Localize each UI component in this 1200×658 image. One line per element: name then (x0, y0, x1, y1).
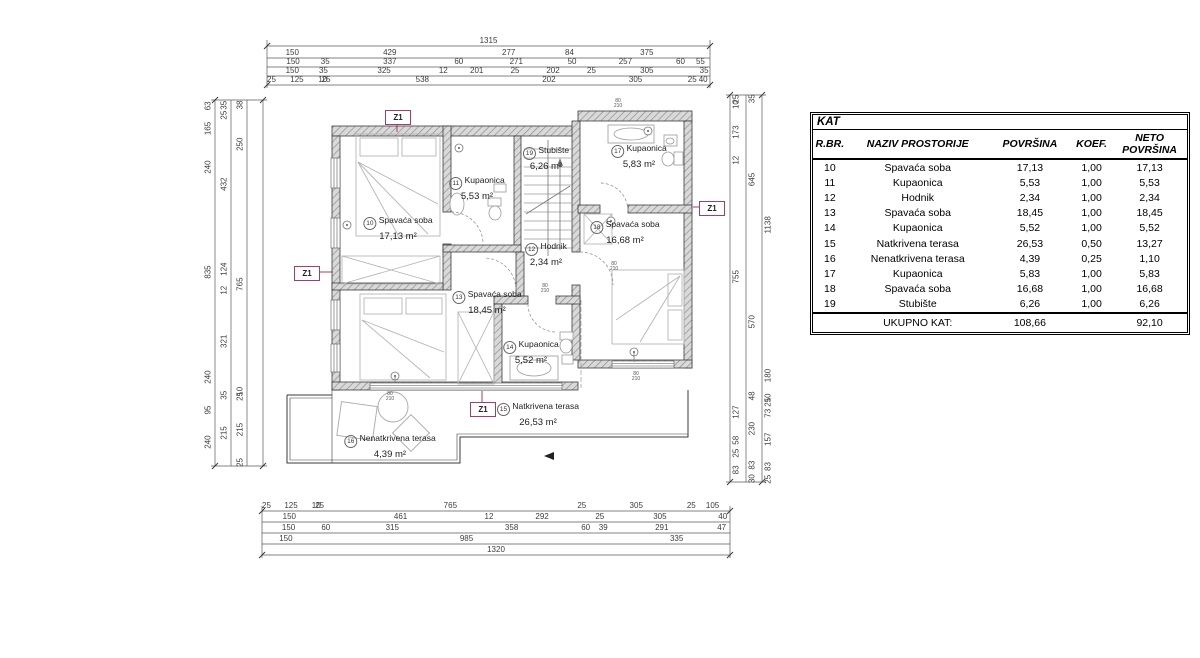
dim-label: 47 (713, 523, 730, 533)
dim-label: 25 (687, 501, 695, 511)
table-cell (813, 313, 847, 332)
table-cell: 2,34 (1112, 190, 1187, 205)
dim-label: 570 (747, 255, 758, 389)
room-number: 12 (525, 243, 538, 256)
room-label-18: 18 Spavaća soba 16,68 m² (590, 219, 659, 246)
dim-chain-bottom-1: 2512510257652530525105 (262, 501, 730, 511)
dim-label: 95 (203, 401, 214, 420)
dim-label: 538 (330, 75, 514, 85)
dim-label: 165 (203, 112, 214, 144)
table-row: 16Nenatkrivena terasa4,390,251,10 (813, 251, 1187, 266)
table-cell: Nenatkrivena terasa (847, 251, 989, 266)
table-cell: 2,34 (989, 190, 1071, 205)
table-cell: 1,00 (1071, 159, 1112, 175)
door-size-tag: 80210 (632, 372, 640, 382)
dim-label: 30 (747, 475, 758, 482)
dim-label: 1138 (763, 95, 774, 355)
table-cell: 0,25 (1071, 251, 1112, 266)
dim-label: 835 (203, 191, 214, 354)
table-cell: Kupaonica (847, 266, 989, 281)
table-cell: Spavaća soba (847, 282, 989, 297)
room-area: 5,52 m² (503, 355, 559, 366)
table-cell: 13 (813, 206, 847, 221)
dim-chain-right-2: 35645570482308330 (747, 95, 758, 482)
dim-label: 432 (219, 118, 230, 250)
room-label-15: 15 Natkrivena terasa 26,53 m² (497, 401, 579, 428)
dim-label: 48 (747, 390, 758, 401)
room-name: Nenatkrivena terasa (360, 433, 436, 443)
table-cell: 1,00 (1071, 190, 1112, 205)
table-cell: 5,83 (1112, 266, 1187, 281)
dim-label: 765 (235, 179, 246, 390)
section-marker-z1-left: Z1 (294, 266, 320, 281)
table-cell: 6,26 (1112, 297, 1187, 313)
table-cell: 1,00 (1071, 282, 1112, 297)
table-total-row: UKUPNO KAT: 108,66 92,10 (813, 313, 1187, 332)
dim-label: 83 (763, 457, 774, 476)
dim-label: 105 (695, 501, 730, 511)
dim-label: 25 (595, 512, 604, 522)
room-area: 26,53 m² (497, 417, 579, 428)
door-size-tag: 80210 (541, 284, 549, 294)
table-cell: 12 (813, 190, 847, 205)
dim-label: 25 (763, 476, 774, 482)
table-total-label: UKUPNO KAT: (847, 313, 989, 332)
table-cell: 18,45 (1112, 206, 1187, 221)
table-cell: Spavaća soba (847, 159, 989, 175)
floor-plan-sheet: 1315 15042927784375 15035337602715025760… (0, 0, 1200, 658)
table-title: KAT (813, 115, 1187, 130)
room-name: Spavaća soba (606, 219, 660, 229)
table-cell: 13,27 (1112, 236, 1187, 251)
table-cell: 14 (813, 221, 847, 236)
table-cell: Stubište (847, 297, 989, 313)
table-cell: 17,13 (989, 159, 1071, 175)
dim-label: 60 (575, 523, 596, 533)
room-name: Stubište (538, 145, 569, 155)
room-area: 4,39 m² (344, 449, 435, 460)
dim-chain-right-1: 251017312755127582583 (731, 95, 742, 482)
room-name: Spavaća soba (468, 289, 522, 299)
dim-label: 240 (203, 144, 214, 191)
dim-label: 240 (203, 419, 214, 466)
dim-label: 292 (489, 512, 595, 522)
room-label-10: 10 Spavaća soba 17,13 m² (363, 215, 432, 242)
dim-label: 321 (219, 292, 230, 390)
table-cell (1071, 313, 1112, 332)
dim-label: 215 (219, 400, 230, 466)
dim-label: 25 (688, 75, 697, 85)
table-row: 13Spavaća soba18,451,0018,45 (813, 206, 1187, 221)
room-name: Kupaonica (627, 143, 667, 153)
dim-chain-left-3: 38250765102521525 (235, 100, 246, 466)
dim-chain-top-1: 1315 (267, 36, 710, 46)
table-cell: 11 (813, 175, 847, 190)
room-number: 11 (449, 177, 462, 190)
table-cell: 16 (813, 251, 847, 266)
dim-label: 315 (336, 523, 448, 533)
dim-label: 83 (731, 457, 742, 482)
table-cell: Kupaonica (847, 175, 989, 190)
table-cell: 15 (813, 236, 847, 251)
dim-label: 150 (262, 523, 315, 533)
table-cell: 5,52 (1112, 221, 1187, 236)
dim-chain-bottom-3: 15060315358603929147 (262, 523, 730, 533)
table-cell: 1,10 (1112, 251, 1187, 266)
table-cell: Spavaća soba (847, 206, 989, 221)
section-marker-z1-right: Z1 (699, 201, 725, 216)
table-column-header: NETO POVRŠINA (1112, 130, 1187, 159)
table-cell: 1,00 (1071, 297, 1112, 313)
table-row: 17Kupaonica5,831,005,83 (813, 266, 1187, 281)
room-number: 10 (363, 217, 376, 230)
dim-label: 25 (235, 393, 246, 400)
door-size-tag: 80210 (614, 99, 622, 109)
table-cell: 17 (813, 266, 847, 281)
bed-room18 (612, 270, 684, 344)
room-name: Natkrivena terasa (512, 401, 579, 411)
dim-label: 25 (731, 449, 742, 457)
table-cell: 5,53 (1112, 175, 1187, 190)
dim-label: 150 (262, 534, 310, 544)
table-column-header: NAZIV PROSTORIJE (847, 130, 989, 159)
dim-label: 335 (623, 534, 730, 544)
room-number: 14 (503, 341, 516, 354)
dim-chain-left-2: 35254321241232135215 (219, 100, 230, 466)
dim-chain-left-1: 6316524083524095240 (203, 100, 214, 466)
table-cell: 0,50 (1071, 236, 1112, 251)
room-area: 5,53 m² (449, 191, 505, 202)
table-cell: Kupaonica (847, 221, 989, 236)
dim-label: 39 (596, 523, 610, 533)
dim-label: 25 (267, 75, 276, 85)
section-marker-z1-top: Z1 (385, 110, 411, 125)
table-row: 19Stubište6,261,006,26 (813, 297, 1187, 313)
dim-label: 25 (262, 501, 270, 511)
dim-label: 250 (235, 110, 246, 179)
dim-chain-bottom-4: 150985335 (262, 534, 730, 544)
dim-label: 35 (747, 95, 758, 103)
dim-label: 305 (586, 501, 687, 511)
dim-label: 202 (514, 75, 583, 85)
door-size-tag: 80210 (386, 392, 394, 402)
dim-label: 38 (235, 100, 246, 110)
table-row: 18Spavaća soba16,681,0016,68 (813, 282, 1187, 297)
table-cell: 5,52 (989, 221, 1071, 236)
dim-label: 63 (203, 100, 214, 112)
table-cell: 1,00 (1071, 221, 1112, 236)
dim-label: 305 (583, 75, 687, 85)
dim-label: 127 (731, 393, 742, 432)
dim-label: 73 (763, 405, 774, 422)
table-cell: Natkrivena terasa (847, 236, 989, 251)
dim-label: 755 (731, 162, 742, 392)
dim-label: 1320 (262, 545, 730, 555)
table-row: 15Natkrivena terasa26,530,5013,27 (813, 236, 1187, 251)
room-name: Kupaonica (465, 175, 505, 185)
room-number: 13 (452, 291, 465, 304)
table-cell: Hodnik (847, 190, 989, 205)
room-number: 19 (523, 147, 536, 160)
dim-label: 173 (731, 106, 742, 159)
room-label-17: 17 Kupaonica 5,83 m² (611, 143, 667, 170)
table-cell: 26,53 (989, 236, 1071, 251)
room-name: Spavaća soba (379, 215, 433, 225)
room-label-19: 19 Stubište 6,26 m² (523, 145, 569, 172)
table-row: 14Kupaonica5,521,005,52 (813, 221, 1187, 236)
bed-room13 (360, 294, 446, 380)
room-number: 16 (344, 435, 357, 448)
room-number: 15 (497, 403, 510, 416)
section-marker-z1-bottom: Z1 (470, 402, 496, 417)
room-area: 17,13 m² (363, 231, 432, 242)
room-area: 16,68 m² (590, 235, 659, 246)
room-label-11: 11 Kupaonica 5,53 m² (449, 175, 505, 202)
room-area: 2,34 m² (525, 257, 567, 268)
table-cell: 18,45 (989, 206, 1071, 221)
room-number: 18 (590, 221, 603, 234)
dim-label: 25 (315, 501, 323, 511)
table-cell: 19 (813, 297, 847, 313)
table-cell: 4,39 (989, 251, 1071, 266)
room-label-13: 13 Spavaća soba 18,45 m² (452, 289, 521, 316)
dim-label: 645 (747, 103, 758, 255)
dim-chain-top-5: 2512510255382023052540 (267, 75, 710, 85)
dim-label: 305 (604, 512, 715, 522)
dim-label: 35 (219, 100, 230, 111)
area-table: KAT R.BR.NAZIV PROSTORIJEPOVRŠINAKOEF.NE… (810, 112, 1190, 335)
table-total-povrsina: 108,66 (989, 313, 1071, 332)
dim-label: 40 (715, 512, 730, 522)
dim-label: 58 (731, 431, 742, 449)
table-column-header: R.BR. (813, 130, 847, 159)
dim-label: 358 (448, 523, 575, 533)
dim-label: 765 (323, 501, 577, 511)
room-name: Kupaonica (519, 339, 559, 349)
dim-label: 215 (235, 400, 246, 459)
section-arrow (544, 452, 554, 460)
dim-chain-bottom-2: 150461122922530540 (262, 512, 730, 522)
table-cell: 5,53 (989, 175, 1071, 190)
dim-chain-bottom-5: 1320 (262, 545, 730, 555)
room-label-12: 12 Hodnik 2,34 m² (525, 241, 567, 268)
table-header-row: R.BR.NAZIV PROSTORIJEPOVRŠINAKOEF.NETO P… (813, 130, 1187, 159)
dim-label: 35 (219, 390, 230, 401)
dim-label: 240 (203, 354, 214, 401)
dim-label: 291 (610, 523, 713, 533)
dim-label: 125 (270, 501, 311, 511)
table-cell: 6,26 (989, 297, 1071, 313)
dim-label: 985 (310, 534, 624, 544)
room-area: 5,83 m² (611, 159, 667, 170)
door-size-tag: 80210 (610, 262, 618, 272)
table-cell: 16,68 (989, 282, 1071, 297)
table-row: 10Spavaća soba17,131,0017,13 (813, 159, 1187, 175)
dim-label: 25 (235, 459, 246, 466)
dim-label: 125 (276, 75, 319, 85)
table-cell: 16,68 (1112, 282, 1187, 297)
dim-label: 83 (747, 455, 758, 475)
room-label-14: 14 Kupaonica 5,52 m² (503, 339, 559, 366)
table-cell: 1,00 (1071, 175, 1112, 190)
room-name: Hodnik (540, 241, 566, 251)
dim-chain-right-3: 11381801025731578325 (763, 95, 774, 482)
table-total-neto: 92,10 (1112, 313, 1187, 332)
table-row: 11Kupaonica5,531,005,53 (813, 175, 1187, 190)
room-label-16: 16 Nenatkrivena terasa 4,39 m² (344, 433, 435, 460)
dim-label: 124 (219, 250, 230, 288)
room-area: 6,26 m² (523, 161, 569, 172)
room-number: 17 (611, 145, 624, 158)
table-cell: 1,00 (1071, 206, 1112, 221)
dim-label: 60 (315, 523, 336, 533)
dim-label: 157 (763, 421, 774, 457)
dim-label: 25 (577, 501, 585, 511)
table-cell: 5,83 (989, 266, 1071, 281)
dim-label: 180 (763, 355, 774, 396)
table-cell: 10 (813, 159, 847, 175)
dim-label: 25 (322, 75, 331, 85)
room-area: 18,45 m² (452, 305, 521, 316)
table-column-header: POVRŠINA (989, 130, 1071, 159)
table-cell: 1,00 (1071, 266, 1112, 281)
dim-label: 1315 (267, 36, 710, 46)
dim-label: 25 (763, 399, 774, 405)
table-column-header: KOEF. (1071, 130, 1112, 159)
dim-label: 230 (747, 401, 758, 455)
dim-label: 150 (262, 512, 317, 522)
dim-label: 461 (317, 512, 485, 522)
table-cell: 17,13 (1112, 159, 1187, 175)
table-cell: 18 (813, 282, 847, 297)
dim-label: 40 (696, 75, 710, 85)
table-row: 12Hodnik2,341,002,34 (813, 190, 1187, 205)
